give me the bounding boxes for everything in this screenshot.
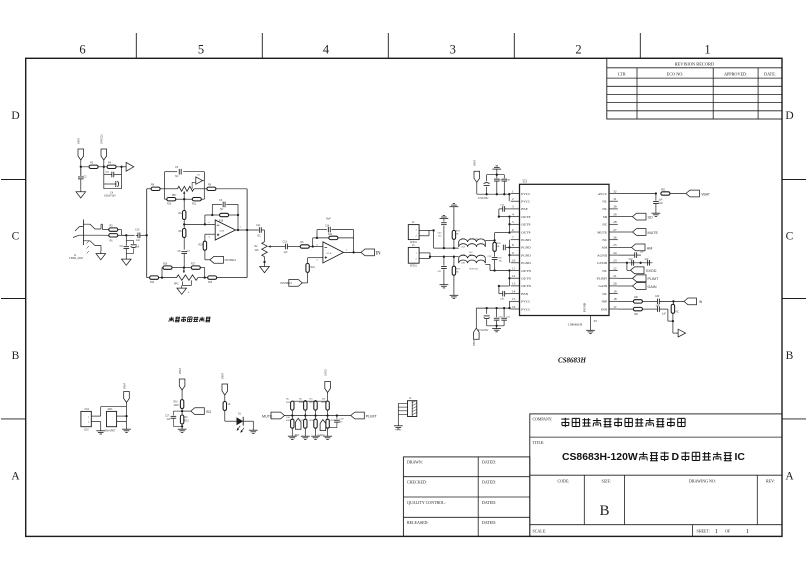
- svg-text:GAIN: GAIN: [598, 284, 607, 288]
- svg-text:NoP: NoP: [326, 218, 331, 221]
- svg-text:DATE:: DATE:: [764, 71, 776, 76]
- svg-text:1uF: 1uF: [284, 252, 289, 254]
- svg-text:MUTE: MUTE: [597, 230, 607, 234]
- svg-text:23: 23: [613, 259, 617, 263]
- svg-text:100K: 100K: [174, 405, 180, 407]
- svg-text:NC: NC: [456, 272, 460, 274]
- svg-text:NC: NC: [310, 399, 314, 401]
- svg-text:C10: C10: [135, 229, 140, 232]
- svg-text:QUALITY CONTROL:: QUALITY CONTROL:: [407, 500, 446, 505]
- svg-text:FB1: FB1: [661, 189, 666, 191]
- svg-text:20K: 20K: [634, 297, 639, 299]
- svg-text:2: 2: [575, 43, 581, 57]
- svg-text:C22: C22: [629, 259, 634, 261]
- svg-text:CS8683H-120W: CS8683H-120W: [562, 452, 638, 463]
- svg-text:PGND: PGND: [521, 261, 531, 265]
- svg-text:SIZE:: SIZE:: [602, 479, 612, 484]
- svg-text:PGND: PGND: [521, 246, 531, 250]
- svg-text:PGND: PGND: [521, 238, 531, 242]
- svg-text:47uF/25v: 47uF/25v: [478, 329, 489, 332]
- svg-text:VBAT: VBAT: [78, 137, 81, 144]
- svg-text:R15: R15: [208, 282, 213, 284]
- svg-text:L2A: L2A: [461, 253, 465, 256]
- svg-text:IN: IN: [376, 251, 382, 256]
- svg-text:NC: NC: [340, 422, 344, 424]
- svg-text:3: 3: [450, 43, 456, 57]
- svg-text:CN1: CN1: [85, 409, 90, 411]
- svg-text:OUTP: OUTP: [521, 215, 530, 219]
- svg-text:DRAWING NO:: DRAWING NO:: [689, 479, 716, 484]
- svg-text:DATED:: DATED:: [482, 500, 496, 505]
- svg-text:NC: NC: [470, 254, 474, 256]
- svg-text:10K: 10K: [255, 250, 260, 252]
- svg-text:R12: R12: [185, 420, 190, 422]
- svg-text:KF301: KF301: [410, 265, 417, 267]
- svg-text:NC: NC: [456, 234, 460, 236]
- svg-text:R13: R13: [179, 231, 184, 233]
- svg-text:A: A: [11, 471, 20, 483]
- svg-text:R22: R22: [328, 234, 333, 236]
- svg-text:2R: 2R: [497, 246, 500, 248]
- svg-text:SD: SD: [603, 215, 608, 219]
- svg-text:RP1: RP1: [172, 195, 177, 197]
- svg-text:100uF/16V: 100uF/16V: [104, 194, 116, 197]
- svg-text:OUTP: OUTP: [521, 230, 530, 234]
- svg-text:29: 29: [613, 212, 617, 216]
- svg-text:SCALE:: SCALE:: [533, 528, 547, 533]
- svg-text:GVDD: GVDD: [597, 261, 608, 265]
- svg-text:C: C: [12, 231, 20, 243]
- svg-text:CS8683H: CS8683H: [558, 357, 587, 365]
- svg-text:31: 31: [613, 197, 617, 201]
- svg-text:25: 25: [613, 243, 617, 247]
- svg-text:19: 19: [613, 289, 617, 293]
- svg-text:MUTE: MUTE: [262, 415, 273, 419]
- svg-text:1K: 1K: [228, 403, 231, 406]
- svg-text:C14: C14: [325, 224, 330, 227]
- svg-text:NC: NC: [602, 269, 608, 273]
- svg-text:16: 16: [512, 305, 516, 309]
- svg-text:NC: NC: [602, 207, 608, 211]
- svg-text:OPVDD1: OPVDD1: [101, 133, 104, 144]
- svg-text:C17: C17: [165, 416, 170, 418]
- svg-text:24: 24: [613, 251, 617, 255]
- svg-text:6: 6: [79, 43, 85, 57]
- svg-text:NC: NC: [499, 261, 503, 263]
- svg-text:1uF: 1uF: [640, 251, 645, 253]
- svg-text:CS8683CB: CS8683CB: [568, 323, 583, 327]
- svg-text:R12: R12: [179, 213, 184, 215]
- svg-text:L2B: L2B: [461, 263, 465, 265]
- svg-text:L1B: L1B: [461, 246, 465, 248]
- svg-text:R16: R16: [163, 263, 168, 265]
- svg-text:RELEASED:: RELEASED:: [407, 520, 429, 525]
- svg-text:NoProbe: NoProbe: [470, 268, 479, 271]
- svg-text:TITLE:: TITLE:: [533, 441, 545, 445]
- svg-text:PVCC: PVCC: [521, 192, 531, 196]
- svg-text:GVDD: GVDD: [646, 269, 657, 273]
- svg-text:10K: 10K: [322, 399, 326, 401]
- svg-text:R10: R10: [174, 402, 179, 404]
- svg-text:11: 11: [512, 266, 516, 270]
- svg-text:1uF: 1uF: [662, 314, 667, 316]
- svg-text:COMPANY:: COMPANY:: [533, 418, 553, 422]
- svg-text:KF301: KF301: [410, 242, 417, 244]
- svg-text:27: 27: [613, 228, 617, 232]
- svg-text:REV:: REV:: [766, 479, 775, 484]
- svg-text:SD: SD: [206, 410, 211, 414]
- svg-text:OUTN: OUTN: [521, 284, 531, 288]
- svg-text:10: 10: [512, 259, 516, 263]
- svg-text:13: 13: [512, 282, 516, 286]
- svg-text:VBAT: VBAT: [473, 339, 476, 346]
- svg-text:33: 33: [594, 319, 598, 323]
- svg-text:PGND: PGND: [583, 302, 587, 312]
- svg-text:D: D: [11, 110, 19, 122]
- svg-text:CN2: CN2: [84, 430, 89, 432]
- svg-text:SW1: SW1: [108, 409, 114, 411]
- svg-text:C: C: [786, 231, 794, 243]
- svg-text:12: 12: [512, 274, 516, 278]
- svg-text:GVDD: GVDD: [324, 369, 327, 376]
- svg-text:D: D: [785, 110, 793, 122]
- svg-text:OPVREF1: OPVREF1: [225, 259, 237, 262]
- svg-text:R14: R14: [150, 282, 155, 284]
- svg-text:INP: INP: [602, 300, 608, 304]
- svg-text:4: 4: [323, 43, 330, 57]
- svg-text:PLIMT: PLIMT: [366, 415, 378, 419]
- svg-text:NC: NC: [602, 223, 608, 227]
- svg-text:BSN: BSN: [521, 292, 528, 296]
- svg-text:SHEET:: SHEET:: [697, 528, 710, 533]
- svg-text:C13: C13: [283, 241, 288, 244]
- svg-text:BSP: BSP: [521, 207, 527, 211]
- svg-text:CODE:: CODE:: [558, 479, 570, 484]
- svg-text:1uF: 1uF: [136, 239, 141, 242]
- svg-text:PLIMT: PLIMT: [597, 277, 608, 281]
- svg-text:15: 15: [512, 297, 516, 301]
- svg-text:PVCC: PVCC: [521, 300, 531, 304]
- svg-text:RP2: RP2: [174, 284, 179, 286]
- svg-text:NC: NC: [602, 292, 608, 296]
- svg-text:MUTE: MUTE: [648, 231, 659, 235]
- svg-text:SW-SPDT: SW-SPDT: [105, 431, 116, 433]
- svg-text:1uF: 1uF: [645, 259, 650, 261]
- svg-text:22: 22: [613, 266, 617, 270]
- svg-text:B: B: [12, 350, 20, 362]
- svg-text:NC: NC: [602, 200, 608, 204]
- svg-text:C26: C26: [655, 296, 660, 298]
- svg-text:OUTP: OUTP: [521, 223, 530, 227]
- svg-text:IC: IC: [735, 452, 746, 463]
- svg-text:C20: C20: [659, 203, 664, 205]
- svg-text:AVCC: AVCC: [598, 192, 608, 196]
- svg-text:U3: U3: [523, 179, 528, 183]
- svg-text:20: 20: [613, 282, 617, 286]
- svg-text:1uF: 1uF: [659, 199, 664, 201]
- svg-text:NC: NC: [185, 417, 189, 419]
- svg-text:VBAT: VBAT: [123, 382, 126, 389]
- svg-text:U1:A: U1:A: [219, 230, 224, 233]
- svg-text:20K: 20K: [634, 314, 639, 316]
- svg-text:R19: R19: [199, 245, 204, 247]
- svg-text:18: 18: [613, 297, 617, 301]
- svg-text:1uF: 1uF: [167, 419, 172, 421]
- svg-text:1: 1: [746, 528, 749, 535]
- svg-text:1: 1: [704, 43, 710, 57]
- svg-text:21: 21: [613, 274, 617, 278]
- svg-text:GAIN: GAIN: [648, 285, 657, 289]
- svg-text:PVCC: PVCC: [521, 200, 531, 204]
- svg-text:VBAT: VBAT: [179, 367, 182, 374]
- svg-text:U1:B: U1:B: [327, 253, 332, 255]
- svg-text:NC: NC: [175, 175, 179, 178]
- svg-text:AM: AM: [647, 246, 653, 250]
- svg-text:SD: SD: [648, 216, 653, 220]
- svg-text:OF: OF: [725, 528, 731, 533]
- svg-text:NC: NC: [286, 399, 290, 401]
- svg-text:32: 32: [613, 189, 617, 193]
- svg-text:AGND: AGND: [597, 253, 608, 257]
- svg-text:NC: NC: [602, 238, 608, 242]
- svg-text:A: A: [785, 471, 794, 483]
- svg-text:NC: NC: [299, 399, 303, 401]
- svg-text:VBAT: VBAT: [474, 159, 477, 166]
- svg-text:5: 5: [198, 43, 204, 57]
- svg-text:17: 17: [613, 305, 617, 309]
- svg-text:OUTN: OUTN: [521, 277, 531, 281]
- svg-text:R17: R17: [191, 263, 196, 265]
- svg-text:47uF/25v: 47uF/25v: [478, 197, 489, 200]
- svg-text:B: B: [599, 503, 609, 519]
- svg-text:CHECKED:: CHECKED:: [407, 480, 427, 485]
- svg-text:30: 30: [613, 205, 617, 209]
- svg-text:B: B: [786, 350, 794, 362]
- svg-text:10K: 10K: [286, 417, 290, 419]
- svg-text:3.5MM_JACK: 3.5MM_JACK: [69, 257, 84, 260]
- svg-text:PLIMT: PLIMT: [648, 277, 660, 281]
- svg-text:PGND: PGND: [521, 253, 531, 257]
- svg-text:28: 28: [613, 220, 617, 224]
- svg-text:14: 14: [512, 289, 516, 293]
- svg-text:NC: NC: [258, 236, 262, 238]
- svg-text:LTR: LTR: [618, 71, 626, 76]
- svg-text:R10: R10: [167, 204, 172, 206]
- svg-text:PVCC: PVCC: [521, 307, 531, 311]
- svg-text:NoProbe: NoProbe: [470, 237, 479, 240]
- svg-text:AM: AM: [602, 246, 609, 250]
- svg-text:C11: C11: [256, 224, 261, 227]
- svg-text:L1A: L1A: [461, 237, 465, 240]
- svg-text:OUTN: OUTN: [521, 269, 531, 273]
- svg-text:NC: NC: [438, 236, 442, 238]
- svg-text:1: 1: [715, 528, 718, 535]
- svg-text:APPROVED:: APPROVED:: [724, 71, 747, 76]
- svg-text:DRAWN:: DRAWN:: [407, 460, 423, 465]
- svg-text:OPVREF1: OPVREF1: [280, 282, 292, 285]
- svg-text:PGND: PGND: [395, 430, 402, 432]
- svg-text:NC: NC: [220, 209, 224, 211]
- svg-text:26: 26: [613, 236, 617, 240]
- svg-text:VBAT: VBAT: [701, 192, 710, 196]
- svg-text:DATED:: DATED:: [482, 480, 496, 485]
- svg-text:INN: INN: [601, 307, 608, 311]
- svg-text:NC: NC: [676, 312, 680, 314]
- svg-text:ECO NO:: ECO NO:: [667, 71, 684, 76]
- svg-text:DATED:: DATED:: [482, 520, 496, 525]
- svg-text:DATED:: DATED:: [482, 460, 496, 465]
- svg-text:R24: R24: [311, 267, 316, 269]
- svg-text:VBAT: VBAT: [222, 372, 225, 379]
- svg-text:REVISION RECORD: REVISION RECORD: [675, 61, 714, 66]
- svg-text:D: D: [672, 452, 680, 463]
